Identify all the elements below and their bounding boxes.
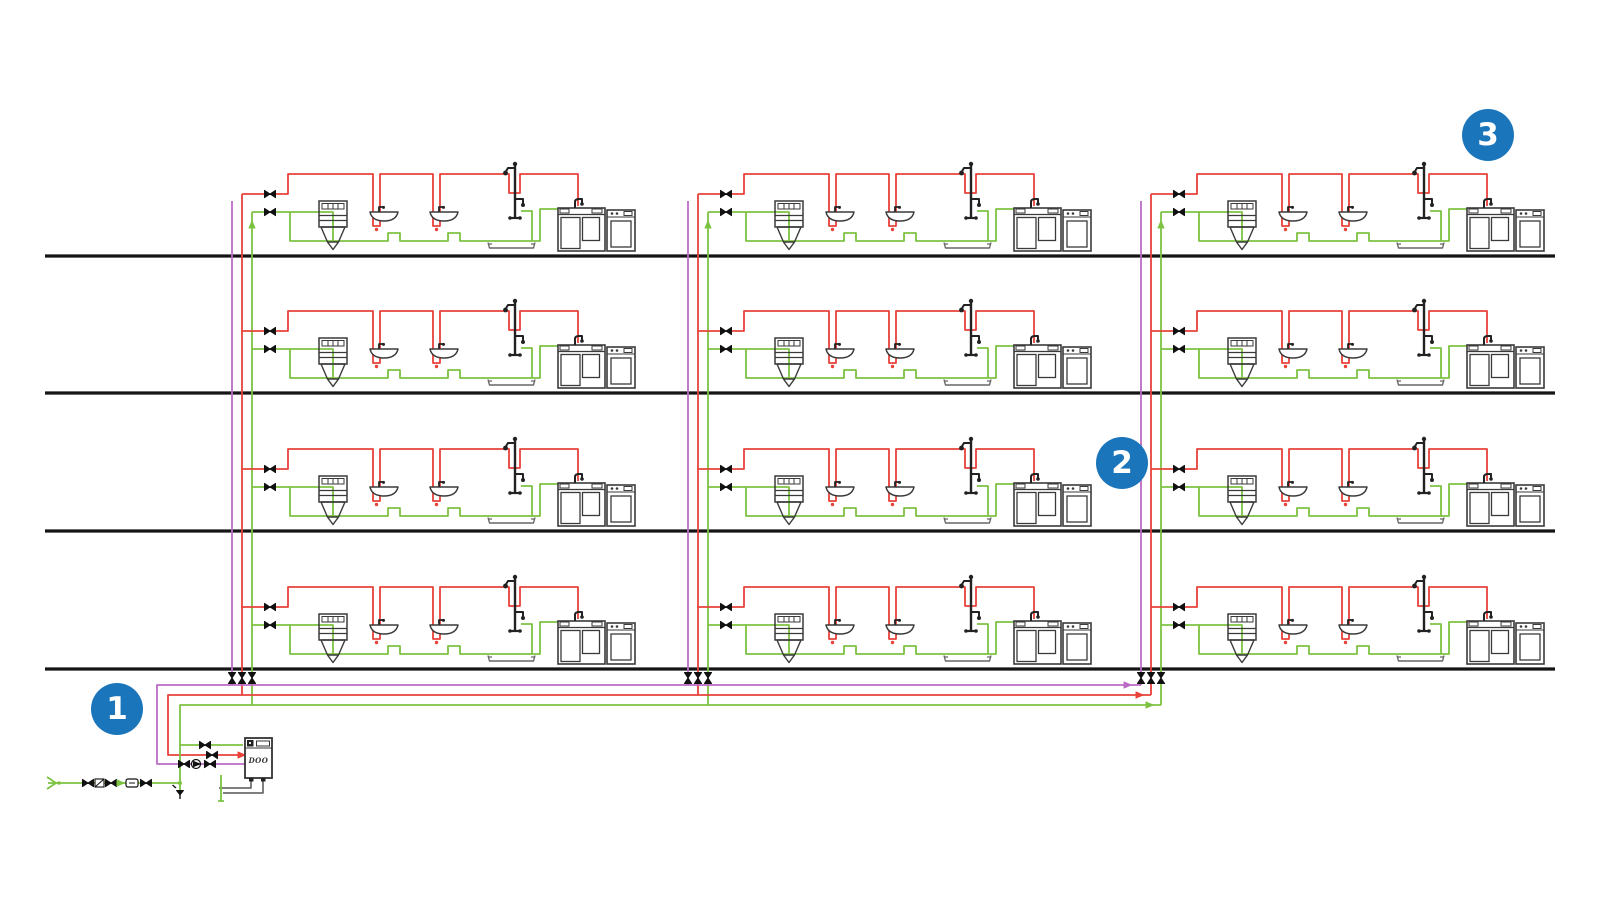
appliance-knob <box>1525 487 1528 490</box>
shower-head <box>959 446 964 451</box>
dishwasher-icon <box>607 623 635 664</box>
dishwasher-icon <box>1516 347 1544 388</box>
basin-bowl <box>370 625 398 634</box>
washbasin-icon <box>826 481 854 496</box>
washbasin-icon <box>370 481 398 496</box>
hot-tap-dot <box>1284 365 1287 368</box>
basin-bowl <box>430 625 458 634</box>
mixer-right <box>518 216 522 220</box>
dishwasher-icon <box>607 347 635 388</box>
distribution-mains <box>157 682 1161 795</box>
mixer-left <box>1417 353 1421 357</box>
washbasin-icon <box>370 619 398 634</box>
schematic-canvas <box>0 0 1600 900</box>
shutoff-valve-icon <box>200 741 211 748</box>
mixer-left <box>1417 629 1421 633</box>
cold-water-pipe <box>1161 346 1492 378</box>
hot-tap-dot <box>831 503 834 506</box>
shutoff-valve-icon <box>265 621 276 628</box>
basin-bowl <box>886 487 914 496</box>
kitchen-sink-icon <box>1467 474 1514 526</box>
cold-water-shower-feed <box>977 348 988 378</box>
apartment-unit-f3-c1 <box>242 437 635 526</box>
hot-tap-dot <box>1344 228 1347 231</box>
hot-water-pipe <box>242 174 578 226</box>
shutoff-valve-icon <box>1174 465 1185 472</box>
bathtub-icon <box>488 380 535 386</box>
hot-water-pipe <box>698 174 1034 226</box>
cold-water-pipe <box>252 484 583 516</box>
washbasin-icon <box>1279 343 1307 358</box>
appliance-knob <box>1525 625 1528 628</box>
kitchen-sink-icon <box>1014 336 1061 388</box>
hot-tap-dot <box>435 503 438 506</box>
appliance-knob <box>1067 487 1070 490</box>
basin-faucet-head <box>442 343 445 346</box>
cold-water-main <box>180 705 1161 795</box>
apartment-unit-f3-c3 <box>1151 437 1544 526</box>
cold-water-pipe <box>708 484 1039 516</box>
basin-faucet-head <box>898 343 901 346</box>
cold-water-shower-feed <box>1430 348 1441 378</box>
bathtub-icon <box>488 518 535 524</box>
riser-valve-icon <box>684 673 691 684</box>
tub-outline <box>1397 656 1444 662</box>
flow-arrow-icon <box>1136 692 1143 698</box>
cold-water-shower-feed <box>977 624 988 654</box>
kitchen-sink-icon <box>1014 474 1061 526</box>
apartment-unit-f3-c2 <box>698 437 1091 526</box>
callout-badge-1[interactable]: 1 <box>91 683 143 735</box>
washbasin-icon <box>430 619 458 634</box>
apartment-unit-f4-c3 <box>1151 575 1544 664</box>
basin-faucet-head <box>1291 343 1294 346</box>
basin-bowl <box>886 349 914 358</box>
mixer-left <box>508 353 512 357</box>
water-service-entry <box>47 777 184 799</box>
appliance-knob <box>616 349 619 352</box>
basin-bowl <box>370 349 398 358</box>
hot-tap-dot <box>891 641 894 644</box>
appliance-knob <box>1520 487 1523 490</box>
cold-water-pipe <box>252 209 583 241</box>
washbasin-icon <box>370 343 398 358</box>
washbasin-icon <box>886 343 914 358</box>
appliance-knob <box>1072 625 1075 628</box>
bathtub-icon <box>488 656 535 662</box>
entry-node <box>57 781 61 785</box>
shower-bracket-end <box>977 340 981 344</box>
basin-faucet-head <box>838 343 841 346</box>
dishwasher-icon <box>607 210 635 251</box>
cold-water-pipe <box>1161 484 1492 516</box>
heater-stub <box>261 778 266 782</box>
basin-bowl <box>1279 212 1307 221</box>
tub-outline <box>944 243 991 249</box>
hot-water-main <box>168 695 1151 755</box>
shutoff-valve-icon <box>205 760 216 767</box>
washbasin-icon <box>1339 619 1367 634</box>
mixer-right <box>974 353 978 357</box>
apartment-unit-f1-c1 <box>242 162 635 251</box>
tub-outline <box>488 518 535 524</box>
hot-tap-dot <box>375 641 378 644</box>
hot-water-pipe <box>1151 587 1487 639</box>
washbasin-icon <box>886 481 914 496</box>
appliance-knob <box>611 212 614 215</box>
shower-pipe-top <box>969 162 973 166</box>
bathtub-icon <box>1397 656 1444 662</box>
shutoff-valve-icon <box>721 603 732 610</box>
kitchen-faucet-head <box>1036 477 1040 481</box>
mixer-right <box>518 629 522 633</box>
cistern-lid-detail <box>1237 479 1247 485</box>
shutoff-valve-icon <box>265 327 276 334</box>
toilet-outlet <box>1237 655 1248 663</box>
shower-head <box>503 584 508 589</box>
shower-bracket-end <box>977 203 981 207</box>
cistern-lid-detail <box>1237 341 1247 347</box>
apartment-unit-f2-c2 <box>698 299 1091 388</box>
hot-tap-dot <box>891 365 894 368</box>
kitchen-sink-icon <box>1467 612 1514 664</box>
shower-head <box>1412 171 1417 176</box>
appliance-knob <box>611 349 614 352</box>
riser-valve-icon <box>248 673 255 684</box>
mixer-right <box>1427 353 1431 357</box>
hot-water-pipe <box>1151 311 1487 363</box>
cistern-lid-detail <box>328 479 338 485</box>
kitchen-faucet-head <box>1036 615 1040 619</box>
shutoff-valve-icon <box>83 779 94 786</box>
toilet-outlet <box>328 517 339 525</box>
mixer-left <box>508 629 512 633</box>
shower-pipe-top <box>969 437 973 441</box>
cistern-lid-detail <box>784 479 794 485</box>
hot-tap-dot <box>435 365 438 368</box>
bathtub-icon <box>1397 518 1444 524</box>
toilet-outlet <box>784 517 795 525</box>
toilet-outlet <box>784 379 795 387</box>
cistern-lid-detail <box>328 341 338 347</box>
cistern-lid-detail <box>784 617 794 623</box>
shower-head <box>503 446 508 451</box>
kitchen-faucet-head <box>1489 477 1493 481</box>
hot-tap-dot <box>375 503 378 506</box>
flow-arrow-icon <box>117 780 124 786</box>
kitchen-faucet-head <box>580 339 584 343</box>
mixer-left <box>964 216 968 220</box>
appliance-knob <box>611 625 614 628</box>
kitchen-faucet-head <box>580 202 584 206</box>
cold-water-pipe <box>1161 622 1492 654</box>
appliance-knob <box>1520 349 1523 352</box>
hot-tap-dot <box>891 228 894 231</box>
cistern-lid-detail <box>328 617 338 623</box>
basin-faucet-head <box>382 343 385 346</box>
shower-bracket-end <box>977 616 981 620</box>
riser-valve-icon <box>704 673 711 684</box>
mixer-right <box>974 629 978 633</box>
basin-bowl <box>1339 487 1367 496</box>
riser-valve-icon <box>1137 673 1144 684</box>
cold-water-shower-feed <box>521 624 532 654</box>
apartment-unit-f1-c3 <box>1151 162 1544 251</box>
flow-arrow-icon <box>249 221 255 228</box>
shower-head <box>959 308 964 313</box>
mixer-right <box>1427 491 1431 495</box>
kitchen-faucet-head <box>580 477 584 481</box>
kitchen-faucet-head <box>1489 339 1493 343</box>
apartment-unit-f2-c3 <box>1151 299 1544 388</box>
bathtub-icon <box>944 243 991 249</box>
cistern-lid-detail <box>1237 617 1247 623</box>
shutoff-valve-icon <box>721 208 732 215</box>
hot-tap-dot <box>891 503 894 506</box>
kitchen-sink-icon <box>558 612 605 664</box>
basin-bowl <box>826 349 854 358</box>
appliance-knob <box>616 487 619 490</box>
shower-head <box>1412 446 1417 451</box>
cold-water-shower-feed <box>1430 211 1441 241</box>
washbasin-icon <box>886 619 914 634</box>
basin-bowl <box>826 212 854 221</box>
washbasin-icon <box>826 206 854 221</box>
appliance-knob <box>1072 487 1075 490</box>
kitchen-faucet-head <box>1489 202 1493 206</box>
toilet-outlet <box>1237 242 1248 250</box>
basin-bowl <box>430 212 458 221</box>
apartment-unit-f4-c2 <box>698 575 1091 664</box>
callout-badge-2[interactable]: 2 <box>1096 437 1148 489</box>
basin-bowl <box>1279 349 1307 358</box>
washbasin-icon <box>430 206 458 221</box>
shower-bracket-end <box>521 478 525 482</box>
hot-tap-dot <box>831 228 834 231</box>
hot-water-pipe <box>1151 174 1487 226</box>
apartment-unit-f2-c1 <box>242 299 635 388</box>
cistern-lid-detail <box>784 341 794 347</box>
hot-tap-dot <box>435 641 438 644</box>
hot-tap-dot <box>375 228 378 231</box>
kitchen-faucet-head <box>1489 615 1493 619</box>
shutoff-valve-icon <box>106 779 117 786</box>
toilet-outlet <box>784 242 795 250</box>
hot-water-pipe <box>698 449 1034 501</box>
shutoff-valve-icon <box>721 483 732 490</box>
hot-tap-dot <box>1284 228 1287 231</box>
basin-bowl <box>1339 625 1367 634</box>
dishwasher-icon <box>607 485 635 526</box>
mixer-left <box>1417 491 1421 495</box>
hot-tap-dot <box>1284 641 1287 644</box>
bathtub-icon <box>944 656 991 662</box>
shower-pipe-top <box>969 299 973 303</box>
cistern-lid-detail <box>784 204 794 210</box>
riser-valve-icon <box>1157 673 1164 684</box>
shutoff-valve-icon <box>265 345 276 352</box>
shower-pipe-top <box>513 299 517 303</box>
kitchen-sink-icon <box>1467 336 1514 388</box>
washbasin-icon <box>1279 206 1307 221</box>
basin-faucet-head <box>1291 619 1294 622</box>
basin-bowl <box>370 487 398 496</box>
basin-bowl <box>826 625 854 634</box>
appliance-knob <box>1525 349 1528 352</box>
toilet-outlet <box>1237 517 1248 525</box>
basin-faucet-head <box>382 481 385 484</box>
shower-pipe-top <box>1422 437 1426 441</box>
mixer-left <box>964 491 968 495</box>
washbasin-icon <box>370 206 398 221</box>
basin-faucet-head <box>382 619 385 622</box>
washbasin-icon <box>826 343 854 358</box>
basin-bowl <box>430 487 458 496</box>
kitchen-faucet-head <box>580 615 584 619</box>
kitchen-sink-icon <box>1014 199 1061 251</box>
appliance-knob <box>1520 212 1523 215</box>
hot-tap-dot <box>1344 503 1347 506</box>
appliance-knob <box>611 487 614 490</box>
shutoff-valve-icon <box>1174 621 1185 628</box>
basin-faucet-head <box>898 206 901 209</box>
cold-water-shower-feed <box>977 211 988 241</box>
basin-faucet-head <box>1351 206 1354 209</box>
toilet-outlet <box>784 655 795 663</box>
dishwasher-icon <box>1063 485 1091 526</box>
basin-bowl <box>370 212 398 221</box>
shutoff-valve-icon <box>1174 190 1185 197</box>
service-equipment <box>179 738 273 801</box>
appliance-knob <box>1072 349 1075 352</box>
tub-outline <box>488 656 535 662</box>
cold-water-pipe <box>708 346 1039 378</box>
cold-water-shower-feed <box>1430 486 1441 516</box>
mixer-right <box>974 491 978 495</box>
shutoff-valve-icon <box>1174 208 1185 215</box>
flow-arrow-icon <box>705 221 711 228</box>
hot-tap-dot <box>1344 641 1347 644</box>
riser-valve-icon <box>1147 673 1154 684</box>
cold-water-shower-feed <box>977 486 988 516</box>
basin-faucet-head <box>898 619 901 622</box>
hot-tap-dot <box>831 365 834 368</box>
kitchen-sink-icon <box>558 336 605 388</box>
hot-tap-dot <box>435 228 438 231</box>
callout-badge-3[interactable]: 3 <box>1462 109 1514 161</box>
appliance-knob <box>1067 625 1070 628</box>
cistern-lid-detail <box>1237 204 1247 210</box>
cold-water-pipe <box>708 622 1039 654</box>
mixer-left <box>508 491 512 495</box>
mixer-right <box>518 491 522 495</box>
shower-head <box>503 308 508 313</box>
shutoff-valve-icon <box>721 345 732 352</box>
basin-bowl <box>430 349 458 358</box>
basin-faucet-head <box>442 206 445 209</box>
kitchen-sink-icon <box>1014 612 1061 664</box>
shower-pipe-top <box>513 437 517 441</box>
tub-outline <box>488 380 535 386</box>
shutoff-valve-icon <box>1174 327 1185 334</box>
kitchen-faucet-head <box>1036 202 1040 206</box>
flow-arrow-icon <box>238 752 245 758</box>
tub-outline <box>488 243 535 249</box>
basin-bowl <box>886 625 914 634</box>
shower-head <box>959 584 964 589</box>
washbasin-icon <box>1339 343 1367 358</box>
cold-water-pipe <box>252 622 583 654</box>
toilet-outlet <box>328 379 339 387</box>
apartment-unit-f1-c2 <box>698 162 1091 251</box>
cold-water-pipe <box>252 346 583 378</box>
cold-water-shower-feed <box>521 348 532 378</box>
shower-bracket-end <box>1430 203 1434 207</box>
shutoff-valve-icon <box>1174 603 1185 610</box>
shower-head <box>503 171 508 176</box>
mixer-left <box>964 629 968 633</box>
hot-tap-dot <box>375 365 378 368</box>
shower-pipe-top <box>1422 299 1426 303</box>
appliance-knob <box>616 625 619 628</box>
basin-faucet-head <box>1351 619 1354 622</box>
toilet-outlet <box>328 242 339 250</box>
tub-outline <box>1397 518 1444 524</box>
flow-arrow-icon <box>1124 682 1131 688</box>
bathtub-icon <box>488 243 535 249</box>
washbasin-icon <box>1279 619 1307 634</box>
heater-stub <box>249 778 254 782</box>
dishwasher-icon <box>1516 485 1544 526</box>
apartment-unit-f4-c1 <box>242 575 635 664</box>
mixer-left <box>1417 216 1421 220</box>
tub-outline <box>944 656 991 662</box>
appliance-knob <box>1525 212 1528 215</box>
basin-bowl <box>1279 487 1307 496</box>
plumbing-schematic: 1 2 3 DOO <box>0 0 1600 900</box>
mixer-right <box>974 216 978 220</box>
washbasin-icon <box>1339 481 1367 496</box>
shutoff-valve-icon <box>265 603 276 610</box>
shutoff-valve-icon <box>265 483 276 490</box>
shutoff-valve-icon <box>141 779 152 786</box>
shutoff-valve-icon <box>179 760 190 767</box>
washbasin-icon <box>430 343 458 358</box>
toilet-outlet <box>328 655 339 663</box>
washbasin-icon <box>1339 206 1367 221</box>
basin-bowl <box>886 212 914 221</box>
kitchen-faucet-head <box>1036 339 1040 343</box>
hot-tap-dot <box>1344 365 1347 368</box>
basin-faucet-head <box>898 481 901 484</box>
shower-head <box>1412 584 1417 589</box>
basin-faucet-head <box>838 619 841 622</box>
bathtub-icon <box>1397 380 1444 386</box>
washbasin-icon <box>886 206 914 221</box>
dishwasher-icon <box>1063 623 1091 664</box>
shower-head <box>959 171 964 176</box>
mixer-right <box>1427 216 1431 220</box>
basin-faucet-head <box>1291 481 1294 484</box>
appliance-knob <box>1520 625 1523 628</box>
hot-water-pipe <box>242 587 578 639</box>
riser-column-2 <box>684 194 711 705</box>
shower-bracket-end <box>1430 478 1434 482</box>
hot-water-pipe <box>242 449 578 501</box>
hot-water-pipe <box>1151 449 1487 501</box>
tub-outline <box>1397 243 1444 249</box>
shower-bracket-end <box>521 340 525 344</box>
